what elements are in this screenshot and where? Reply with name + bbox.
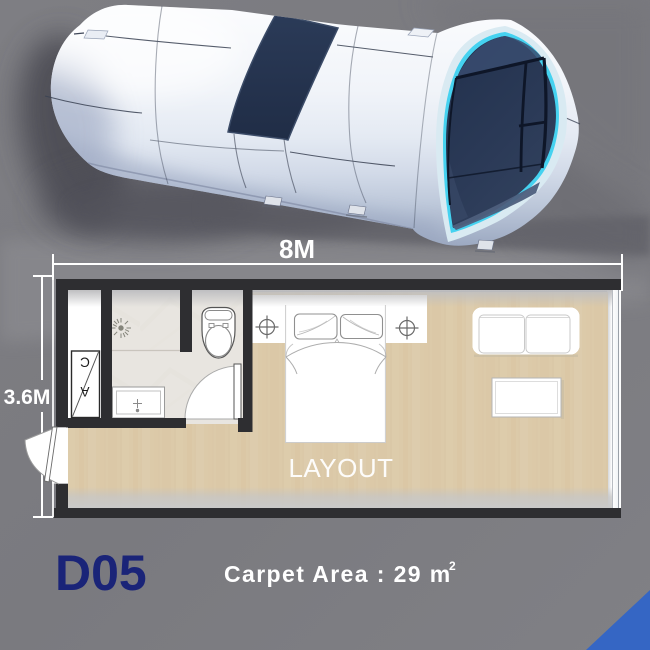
svg-text:8M: 8M xyxy=(279,234,315,264)
svg-text:LAYOUT: LAYOUT xyxy=(288,453,393,483)
svg-text:Carpet Area : 29 m: Carpet Area : 29 m xyxy=(224,561,452,587)
svg-text:D05: D05 xyxy=(55,545,147,601)
svg-text:2: 2 xyxy=(449,559,456,573)
svg-text:C: C xyxy=(80,355,90,370)
svg-text:3.6M: 3.6M xyxy=(4,386,51,409)
svg-text:A: A xyxy=(80,384,89,399)
